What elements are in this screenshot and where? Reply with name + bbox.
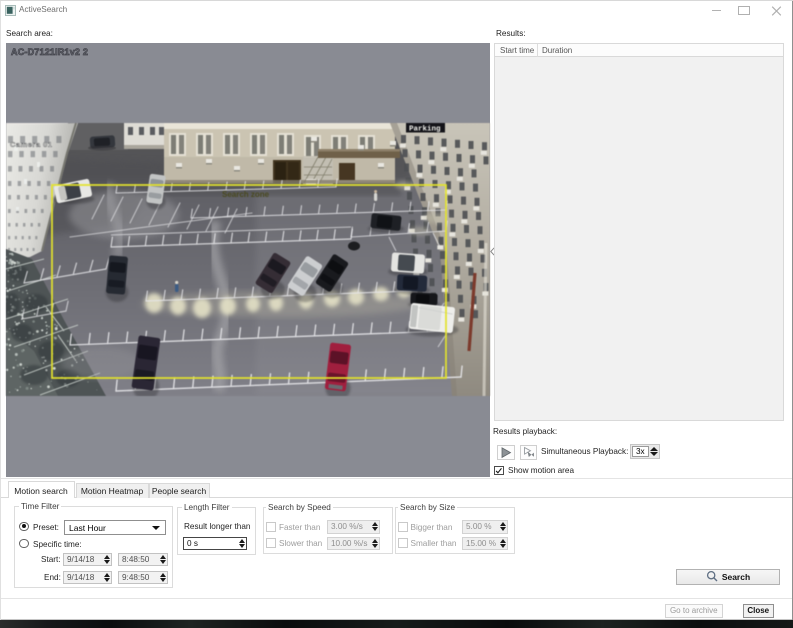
svg-text:Camera 01: Camera 01 — [10, 140, 52, 149]
svg-text:Search zone: Search zone — [222, 190, 270, 199]
svg-text:Parking: Parking — [409, 126, 441, 134]
